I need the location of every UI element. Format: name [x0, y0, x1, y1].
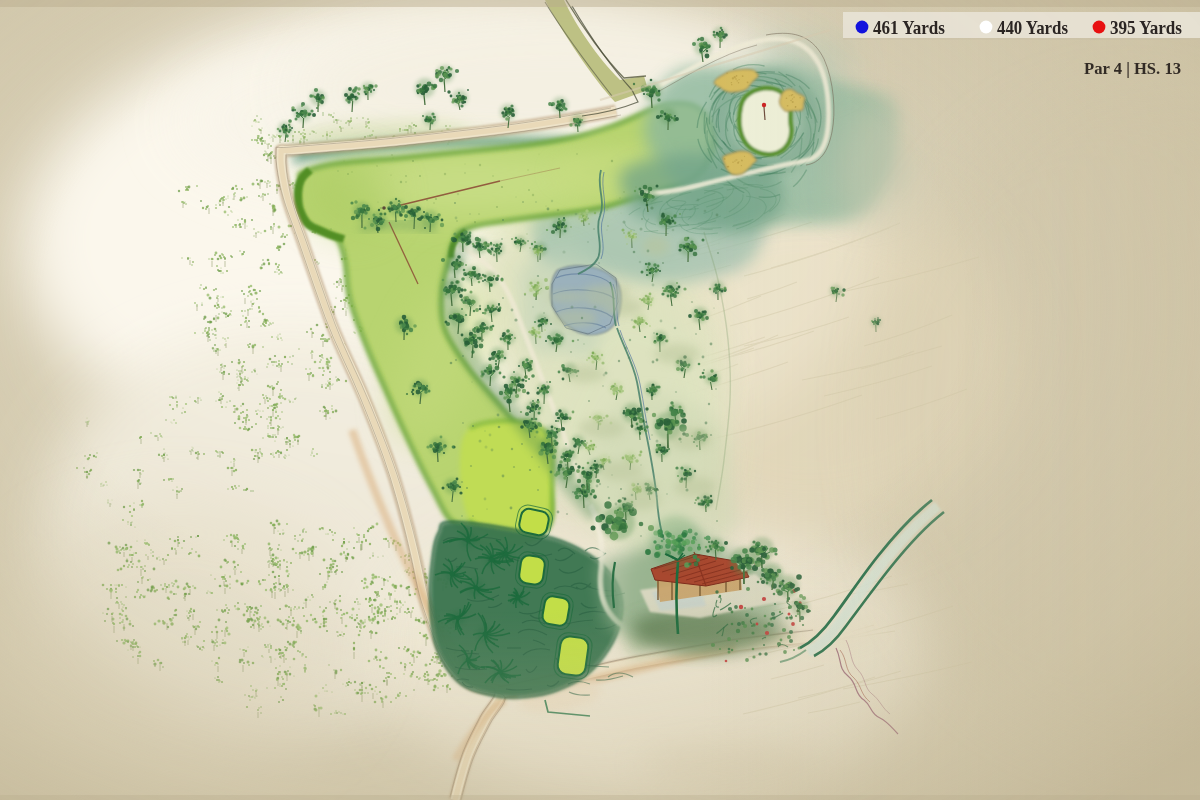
svg-text:461 Yards: 461 Yards — [873, 17, 945, 38]
svg-text:Par 4 | HS. 13: Par 4 | HS. 13 — [1084, 59, 1181, 78]
svg-text:440 Yards: 440 Yards — [997, 17, 1068, 38]
svg-text:395 Yards: 395 Yards — [1110, 17, 1182, 38]
